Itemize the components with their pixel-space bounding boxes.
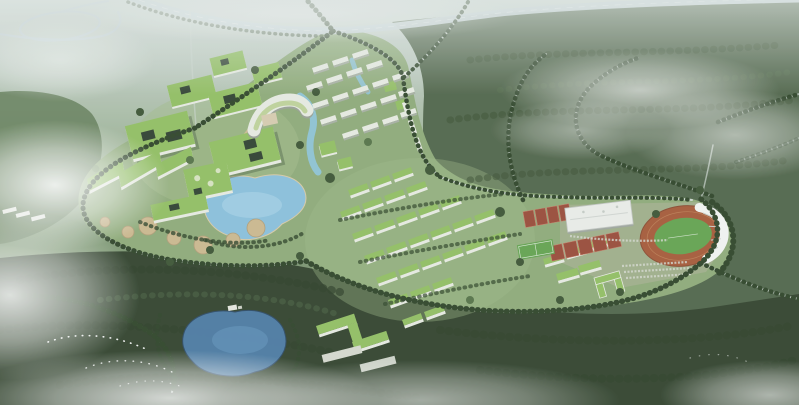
rendering-canvas bbox=[0, 0, 799, 405]
color-grade-overlay bbox=[0, 0, 799, 405]
aerial-campus-rendering bbox=[0, 0, 799, 405]
